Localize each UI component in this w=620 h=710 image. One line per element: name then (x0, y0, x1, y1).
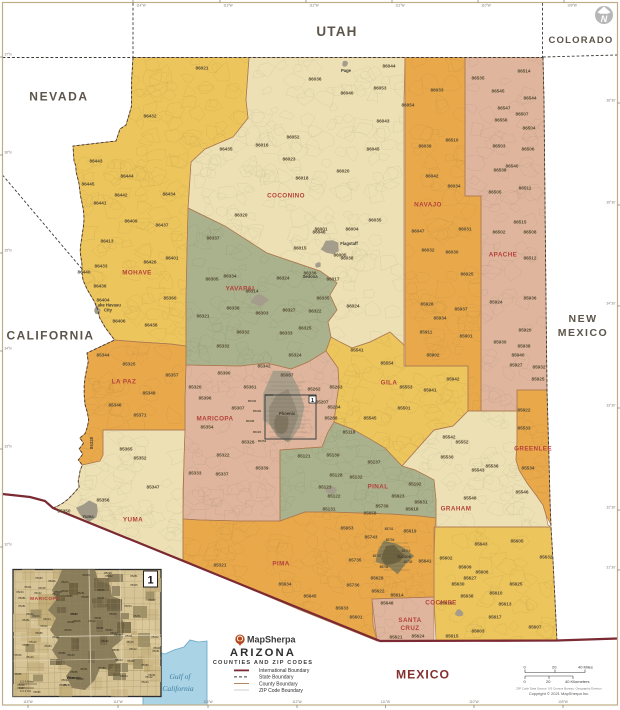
svg-text:85281: 85281 (96, 626, 104, 630)
svg-text:PIMA: PIMA (272, 560, 289, 567)
svg-text:85086: 85086 (35, 631, 43, 635)
svg-text:85328: 85328 (89, 436, 94, 449)
svg-text:85204: 85204 (141, 680, 149, 684)
svg-text:85653: 85653 (340, 526, 353, 531)
svg-text:36°N: 36°N (4, 151, 12, 155)
svg-text:85925: 85925 (531, 377, 544, 382)
svg-text:86034: 86034 (447, 184, 460, 189)
svg-text:85301: 85301 (24, 585, 32, 589)
svg-text:85541: 85541 (350, 348, 363, 353)
svg-text:86435: 86435 (219, 147, 232, 152)
svg-text:86332: 86332 (236, 330, 249, 335)
svg-text:Flagstaff: Flagstaff (340, 241, 358, 246)
svg-text:85326: 85326 (241, 440, 254, 445)
svg-text:34°N: 34°N (4, 347, 12, 351)
svg-text:85940: 85940 (511, 353, 524, 358)
svg-text:85087: 85087 (280, 373, 293, 378)
svg-text:86502: 86502 (492, 230, 505, 235)
svg-text:37°N: 37°N (4, 53, 12, 57)
svg-text:85326: 85326 (48, 579, 56, 583)
svg-text:85204: 85204 (43, 617, 51, 621)
svg-text:85086: 85086 (141, 663, 149, 667)
svg-text:PINAL: PINAL (368, 483, 389, 490)
svg-text:85337: 85337 (215, 472, 228, 477)
svg-text:86436: 86436 (93, 284, 106, 289)
svg-text:85383: 85383 (44, 644, 52, 648)
svg-text:85552: 85552 (455, 440, 468, 445)
svg-text:International Boundary: International Boundary (259, 668, 310, 674)
svg-text:85122: 85122 (327, 494, 340, 499)
svg-text:86031: 86031 (458, 227, 471, 232)
svg-text:86337: 86337 (206, 236, 219, 241)
svg-text:85326: 85326 (14, 653, 22, 657)
svg-text:86547: 86547 (497, 106, 510, 111)
svg-text:86443: 86443 (89, 159, 102, 164)
svg-text:86413: 86413 (100, 239, 113, 244)
svg-text:MARICOPA: MARICOPA (196, 415, 233, 422)
svg-text:85086: 85086 (33, 690, 41, 694)
svg-text:85140: 85140 (26, 655, 34, 659)
svg-text:112°W: 112°W (292, 700, 301, 704)
svg-text:85032: 85032 (151, 635, 159, 639)
svg-text:86440: 86440 (77, 270, 90, 275)
svg-text:85307: 85307 (231, 406, 244, 411)
svg-text:85320: 85320 (188, 385, 201, 390)
svg-text:85942: 85942 (446, 377, 459, 382)
svg-text:85617: 85617 (488, 615, 501, 620)
svg-text:115°W: 115°W (23, 700, 32, 704)
svg-text:85357: 85357 (165, 373, 178, 378)
svg-text:85614: 85614 (390, 593, 403, 598)
svg-text:85118: 85118 (343, 430, 356, 435)
svg-text:85615: 85615 (445, 634, 458, 639)
svg-text:86015: 86015 (293, 246, 306, 251)
svg-text:86024: 86024 (346, 304, 359, 309)
svg-text:85348: 85348 (142, 391, 155, 396)
svg-text:85613: 85613 (498, 602, 511, 607)
svg-text:85920: 85920 (518, 328, 531, 333)
svg-text:86444: 86444 (120, 174, 133, 179)
svg-text:85142: 85142 (129, 647, 137, 651)
svg-text:COUNTIES AND ZIP CODES: COUNTIES AND ZIP CODES (213, 660, 313, 666)
svg-text:85251: 85251 (94, 616, 102, 620)
svg-text:86505: 86505 (488, 190, 501, 195)
svg-text:85554: 85554 (380, 361, 393, 366)
svg-text:85086: 85086 (98, 666, 106, 670)
svg-text:114°W: 114°W (113, 700, 122, 704)
svg-text:85345: 85345 (64, 628, 72, 632)
svg-text:86515: 86515 (513, 220, 526, 225)
svg-text:85131: 85131 (322, 507, 335, 512)
svg-text:86327: 86327 (282, 308, 295, 313)
svg-text:86504: 86504 (522, 126, 535, 131)
svg-text:85356: 85356 (96, 498, 109, 503)
svg-text:114°W: 114°W (136, 4, 145, 8)
svg-text:85086: 85086 (70, 670, 78, 674)
svg-text:NEW: NEW (569, 313, 598, 325)
svg-text:86338: 86338 (226, 306, 239, 311)
svg-text:MARICOPA: MARICOPA (30, 596, 60, 602)
svg-text:85633: 85633 (335, 606, 348, 611)
svg-text:32°30': 32°30' (607, 506, 616, 510)
svg-text:86503: 86503 (492, 144, 505, 149)
svg-text:85735: 85735 (348, 558, 361, 563)
svg-text:111°W: 111°W (395, 4, 404, 8)
svg-text:86005: 86005 (333, 253, 346, 258)
svg-text:32°N: 32°N (4, 543, 12, 547)
svg-text:85610: 85610 (489, 591, 502, 596)
svg-text:113°W: 113°W (203, 700, 212, 704)
svg-text:COCHISE: COCHISE (425, 599, 457, 606)
svg-text:86432: 86432 (143, 114, 156, 119)
svg-text:85086: 85086 (65, 594, 73, 598)
svg-text:86445: 86445 (81, 182, 94, 187)
svg-text:86321: 86321 (196, 314, 209, 319)
svg-text:85032: 85032 (40, 624, 48, 628)
svg-text:86023: 86023 (282, 157, 295, 162)
svg-text:85629: 85629 (370, 576, 383, 581)
svg-text:86433: 86433 (94, 264, 107, 269)
svg-text:86441: 86441 (93, 201, 106, 206)
svg-text:COCONINO: COCONINO (267, 192, 305, 199)
svg-text:85603: 85603 (471, 629, 484, 634)
svg-text:86442: 86442 (114, 193, 127, 198)
svg-text:85354: 85354 (200, 425, 213, 430)
svg-text:86045: 86045 (366, 147, 379, 152)
svg-text:85621: 85621 (389, 635, 402, 640)
svg-text:86004: 86004 (345, 227, 358, 232)
svg-text:85340: 85340 (248, 399, 257, 403)
svg-text:85645: 85645 (303, 594, 316, 599)
svg-text:86540: 86540 (505, 164, 518, 169)
svg-text:85281: 85281 (22, 618, 30, 622)
svg-text:86333: 86333 (279, 331, 292, 336)
svg-text:MEXICO: MEXICO (396, 668, 450, 682)
svg-text:85008: 85008 (109, 612, 117, 616)
svg-text:86021: 86021 (195, 66, 208, 71)
svg-text:85631: 85631 (414, 500, 427, 505)
svg-text:85392: 85392 (253, 409, 262, 413)
svg-text:85321: 85321 (213, 563, 226, 568)
svg-text:86409: 86409 (124, 219, 137, 224)
svg-text:85268: 85268 (324, 416, 337, 421)
svg-text:85937: 85937 (454, 307, 467, 312)
svg-text:Phoenix: Phoenix (279, 411, 296, 416)
svg-text:85264: 85264 (327, 405, 340, 410)
svg-text:CRUZ: CRUZ (400, 625, 419, 632)
svg-text:86042: 86042 (425, 174, 438, 179)
svg-text:86508: 86508 (523, 230, 536, 235)
svg-text:86017: 86017 (326, 277, 339, 282)
svg-text:85625: 85625 (509, 582, 522, 587)
svg-text:85087: 85087 (148, 598, 156, 602)
svg-text:Phoenix: Phoenix (67, 676, 82, 680)
svg-text:86030: 86030 (445, 250, 458, 255)
svg-text:85338: 85338 (246, 419, 255, 423)
svg-text:NEVADA: NEVADA (29, 90, 88, 104)
svg-text:85383: 85383 (127, 659, 135, 663)
svg-text:85627: 85627 (463, 576, 476, 581)
svg-text:Yuma: Yuma (82, 514, 94, 519)
svg-text:85757: 85757 (373, 554, 382, 558)
svg-text:85346: 85346 (108, 403, 121, 408)
svg-text:85204: 85204 (61, 580, 69, 584)
svg-text:85339: 85339 (255, 466, 268, 471)
svg-text:86545: 86545 (491, 89, 504, 94)
svg-text:86406: 86406 (112, 319, 125, 324)
svg-text:86016: 86016 (255, 143, 268, 148)
svg-text:85902: 85902 (426, 353, 439, 358)
svg-text:85323: 85323 (253, 430, 262, 434)
svg-text:86320: 86320 (234, 213, 247, 218)
svg-text:85390: 85390 (217, 371, 230, 376)
svg-text:State Boundary: State Boundary (259, 675, 294, 681)
svg-text:YUMA: YUMA (123, 516, 143, 523)
svg-text:85624: 85624 (411, 634, 424, 639)
svg-text:85901: 85901 (459, 334, 472, 339)
svg-text:86511: 86511 (519, 186, 532, 191)
svg-text:86544: 86544 (523, 96, 536, 101)
svg-text:Tucson: Tucson (397, 554, 412, 559)
svg-text:111°W: 111°W (381, 700, 390, 704)
svg-text:85618: 85618 (405, 507, 418, 512)
svg-text:86535: 86535 (471, 76, 484, 81)
svg-text:85352: 85352 (133, 456, 146, 461)
svg-text:85251: 85251 (112, 648, 120, 652)
svg-text:86032: 86032 (421, 248, 434, 253)
svg-text:Page: Page (341, 68, 352, 73)
svg-text:85281: 85281 (97, 596, 105, 600)
svg-text:MEXICO: MEXICO (558, 327, 608, 339)
svg-text:86426: 86426 (143, 260, 156, 265)
svg-text:40 Miles: 40 Miles (578, 665, 593, 670)
svg-text:86046: 86046 (312, 230, 325, 235)
svg-text:86434: 86434 (162, 192, 175, 197)
svg-text:110°W: 110°W (481, 4, 490, 8)
svg-text:85192: 85192 (408, 482, 421, 487)
svg-text:85543: 85543 (471, 468, 484, 473)
svg-text:85139: 85139 (326, 453, 339, 458)
svg-text:85326: 85326 (101, 639, 109, 643)
svg-text:85606: 85606 (475, 570, 488, 575)
svg-text:86510: 86510 (445, 138, 458, 143)
svg-text:ZIP Code Boundary: ZIP Code Boundary (259, 688, 303, 694)
svg-text:YAVAPAI: YAVAPAI (226, 285, 255, 292)
svg-text:85930: 85930 (493, 340, 506, 345)
svg-text:86507: 86507 (515, 112, 528, 117)
svg-text:85248: 85248 (38, 586, 46, 590)
svg-text:35°N: 35°N (4, 249, 12, 253)
svg-text:85137: 85137 (367, 460, 380, 465)
svg-text:N: N (601, 14, 608, 24)
svg-text:85132: 85132 (349, 475, 362, 480)
svg-text:85121: 85121 (297, 454, 310, 459)
svg-text:110°W: 110°W (469, 700, 478, 704)
svg-text:Sedona: Sedona (302, 274, 318, 279)
svg-text:85325: 85325 (122, 362, 135, 367)
svg-text:85746: 85746 (380, 565, 389, 569)
svg-text:86040: 86040 (340, 91, 353, 96)
svg-text:ARIZONA: ARIZONA (230, 647, 296, 659)
svg-text:85602: 85602 (439, 556, 452, 561)
svg-text:85044: 85044 (120, 674, 128, 678)
svg-text:85383: 85383 (35, 576, 43, 580)
svg-text:85342: 85342 (257, 364, 270, 369)
svg-text:85623: 85623 (391, 494, 404, 499)
svg-text:85123: 85123 (318, 485, 331, 490)
svg-text:85741: 85741 (385, 527, 394, 531)
svg-text:85365: 85365 (119, 447, 132, 452)
svg-text:NAVAJO: NAVAJO (414, 201, 442, 208)
svg-text:85634: 85634 (278, 582, 291, 587)
svg-text:GREENLEE: GREENLEE (514, 445, 552, 452)
svg-text:County Boundary: County Boundary (259, 681, 298, 687)
svg-text:85251: 85251 (80, 667, 88, 671)
svg-text:85534: 85534 (521, 466, 534, 471)
svg-text:85204: 85204 (82, 573, 90, 577)
svg-text:California: California (162, 684, 194, 693)
svg-text:86438: 86438 (144, 323, 157, 328)
svg-text:85204: 85204 (16, 590, 24, 594)
svg-text:86325: 86325 (298, 326, 311, 331)
svg-text:1: 1 (147, 575, 153, 587)
svg-text:GRAHAM: GRAHAM (441, 505, 472, 512)
svg-text:86514: 86514 (517, 69, 530, 74)
svg-text:85262: 85262 (307, 387, 320, 392)
svg-text:85361: 85361 (243, 385, 256, 390)
svg-text:86047: 86047 (411, 229, 424, 234)
svg-text:85044: 85044 (70, 612, 78, 616)
svg-text:85008: 85008 (81, 595, 89, 599)
svg-text:SANTA: SANTA (398, 617, 421, 624)
svg-text:APACHE: APACHE (489, 251, 518, 258)
svg-text:20: 20 (546, 679, 551, 684)
svg-text:36°30': 36°30' (607, 99, 616, 103)
svg-text:GILA: GILA (381, 379, 398, 386)
svg-text:85032: 85032 (61, 589, 69, 593)
svg-text:85140: 85140 (67, 653, 75, 657)
svg-text:85622: 85622 (371, 589, 384, 594)
svg-text:86052: 86052 (286, 135, 299, 140)
svg-text:85911: 85911 (420, 330, 433, 335)
svg-text:85730: 85730 (404, 560, 413, 564)
svg-text:86044: 86044 (382, 64, 395, 69)
svg-text:86506: 86506 (521, 147, 534, 152)
svg-text:85710: 85710 (402, 549, 411, 553)
svg-text:85086: 85086 (58, 651, 66, 655)
svg-text:85326: 85326 (73, 619, 81, 623)
svg-text:85142: 85142 (145, 675, 153, 679)
svg-text:85360: 85360 (163, 296, 176, 301)
svg-text:86556: 86556 (494, 118, 507, 123)
svg-text:86054: 86054 (401, 103, 414, 108)
svg-text:85501: 85501 (397, 406, 410, 411)
svg-text:85609: 85609 (458, 565, 471, 570)
svg-text:City: City (104, 308, 113, 313)
svg-text:35°30': 35°30' (607, 201, 616, 205)
svg-text:86036: 86036 (308, 77, 321, 82)
svg-text:85345: 85345 (97, 588, 105, 592)
svg-text:85345: 85345 (130, 583, 138, 587)
svg-text:85086: 85086 (14, 672, 22, 676)
svg-text:86335: 86335 (316, 296, 329, 301)
svg-text:86512: 86512 (523, 256, 536, 261)
svg-text:85044: 85044 (115, 658, 123, 662)
svg-text:112°W: 112°W (309, 4, 318, 8)
svg-text:85924: 85924 (489, 300, 502, 305)
svg-text:85932: 85932 (532, 365, 545, 370)
svg-text:85922: 85922 (517, 408, 530, 413)
svg-text:CALIFORNIA: CALIFORNIA (7, 329, 95, 343)
svg-text:85607: 85607 (528, 625, 541, 630)
svg-text:85324: 85324 (288, 353, 301, 358)
svg-text:86043: 86043 (376, 119, 389, 124)
svg-text:0 2 4 Miles: 0 2 4 Miles (20, 680, 34, 684)
svg-text:85638: 85638 (460, 594, 473, 599)
svg-text:Gulf of: Gulf of (169, 672, 191, 681)
svg-text:31°30': 31°30' (607, 566, 616, 570)
svg-text:85739: 85739 (375, 504, 388, 509)
svg-text:86334: 86334 (223, 274, 236, 279)
svg-text:113°W: 113°W (223, 4, 232, 8)
svg-text:1: 1 (311, 398, 314, 404)
svg-text:85333: 85333 (188, 471, 201, 476)
svg-text:85743: 85743 (364, 535, 377, 540)
svg-text:85658: 85658 (363, 511, 376, 516)
svg-text:85251: 85251 (133, 614, 141, 618)
svg-text:85281: 85281 (18, 604, 26, 608)
svg-text:85648: 85648 (380, 601, 393, 606)
svg-text:85533: 85533 (517, 426, 530, 431)
svg-text:85281: 85281 (130, 574, 138, 578)
svg-text:85530: 85530 (440, 455, 453, 460)
svg-text:85281: 85281 (152, 649, 160, 653)
svg-text:86020: 86020 (336, 169, 349, 174)
svg-text:85204: 85204 (32, 614, 40, 618)
svg-text:109°W: 109°W (558, 700, 568, 704)
svg-text:86025: 86025 (460, 272, 473, 277)
svg-text:Copyright © 2021 MapSherpa Inc: Copyright © 2021 MapSherpa Inc. (529, 691, 590, 696)
svg-text:86033: 86033 (430, 88, 443, 93)
svg-text:85140: 85140 (29, 640, 37, 644)
svg-text:85941: 85941 (423, 388, 436, 393)
svg-text:85632: 85632 (539, 555, 552, 560)
svg-text:34°30': 34°30' (607, 302, 616, 306)
svg-text:86538: 86538 (493, 168, 506, 173)
svg-text:86437: 86437 (155, 223, 168, 228)
svg-text:85128: 85128 (329, 473, 342, 478)
svg-text:UTAH: UTAH (316, 24, 357, 39)
svg-text:85353: 85353 (258, 439, 267, 443)
svg-text:85263: 85263 (329, 385, 342, 390)
svg-text:85736: 85736 (346, 583, 359, 588)
svg-text:85204: 85204 (124, 604, 132, 608)
svg-text:85281: 85281 (63, 683, 71, 687)
svg-text:85553: 85553 (399, 385, 412, 390)
svg-text:86018: 86018 (295, 176, 308, 181)
svg-text:85938: 85938 (517, 344, 530, 349)
svg-text:85248: 85248 (104, 571, 112, 575)
svg-text:85396: 85396 (198, 396, 211, 401)
svg-text:85332: 85332 (216, 344, 229, 349)
svg-text:85536: 85536 (485, 464, 498, 469)
svg-text:85248: 85248 (126, 640, 134, 644)
svg-text:85207: 85207 (315, 400, 328, 405)
svg-text:33°30': 33°30' (607, 404, 616, 408)
svg-text:85601: 85601 (349, 615, 362, 620)
svg-text:85641: 85641 (418, 559, 431, 564)
svg-text:85643: 85643 (474, 542, 487, 547)
